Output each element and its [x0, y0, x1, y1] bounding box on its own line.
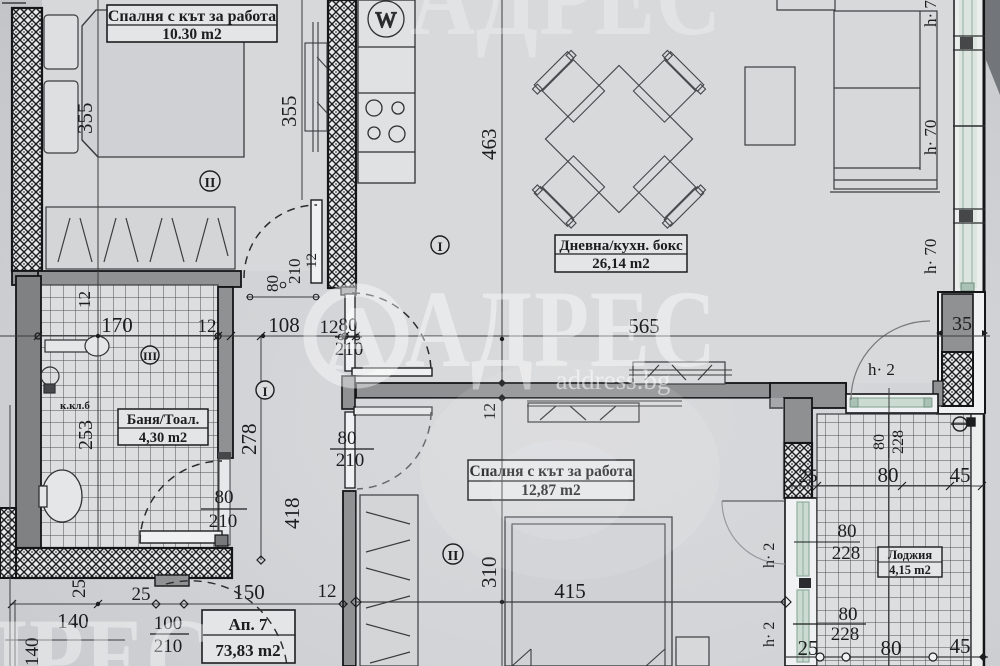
svg-text:h· 70: h· 70	[921, 120, 940, 155]
svg-text:45: 45	[950, 463, 971, 487]
svg-text:h· 2: h· 2	[761, 543, 778, 568]
svg-text:463: 463	[477, 129, 501, 161]
svg-text:АДРЕС: АДРЕС	[410, 0, 722, 58]
svg-text:25: 25	[69, 579, 90, 598]
svg-text:10.30 m2: 10.30 m2	[162, 26, 222, 43]
svg-text:12: 12	[318, 581, 337, 602]
svg-text:h· 70: h· 70	[921, 239, 940, 274]
svg-text:I: I	[262, 384, 267, 399]
svg-text:25: 25	[799, 466, 818, 487]
svg-text:АДРЕС: АДРЕС	[0, 597, 212, 666]
svg-text:А: А	[324, 287, 390, 389]
svg-text:h· 7: h· 7	[921, 0, 940, 27]
svg-text:80: 80	[338, 428, 357, 449]
svg-text:73,83 m2: 73,83 m2	[215, 641, 280, 660]
svg-text:45: 45	[950, 634, 971, 658]
svg-text:II: II	[448, 549, 459, 564]
svg-text:253: 253	[75, 420, 97, 450]
svg-text:415: 415	[554, 579, 586, 603]
svg-text:25: 25	[798, 636, 819, 660]
svg-text:80: 80	[871, 434, 888, 450]
svg-text:III: III	[143, 349, 157, 363]
svg-text:address.bg: address.bg	[556, 365, 671, 395]
svg-text:355: 355	[277, 96, 301, 128]
svg-text:80: 80	[263, 275, 282, 292]
svg-text:h· 2: h· 2	[761, 622, 778, 647]
svg-text:4,15 m2: 4,15 m2	[889, 563, 931, 577]
svg-text:80: 80	[878, 463, 899, 487]
svg-text:418: 418	[280, 498, 304, 530]
svg-text:W: W	[376, 7, 397, 32]
svg-text:228: 228	[890, 430, 907, 454]
svg-text:170: 170	[101, 313, 133, 337]
svg-text:II: II	[205, 176, 216, 191]
svg-text:80: 80	[839, 604, 858, 625]
svg-text:12: 12	[75, 291, 94, 308]
svg-text:I: I	[437, 239, 442, 254]
svg-text:80: 80	[838, 521, 857, 542]
svg-text:210: 210	[209, 511, 238, 532]
svg-text:210: 210	[336, 450, 365, 471]
svg-text:Дневна/кухн. бокс: Дневна/кухн. бокс	[559, 238, 683, 254]
svg-text:278: 278	[237, 424, 261, 456]
svg-text:355: 355	[73, 103, 97, 135]
svg-text:12: 12	[304, 253, 320, 268]
svg-text:Баня/Тоал.: Баня/Тоал.	[127, 412, 199, 428]
svg-text:80: 80	[215, 487, 234, 508]
svg-text:4,30 m2: 4,30 m2	[139, 430, 187, 446]
svg-text:h· 2: h· 2	[868, 360, 895, 379]
svg-text:108: 108	[268, 313, 300, 337]
svg-text:35: 35	[952, 313, 972, 335]
svg-text:80: 80	[881, 636, 902, 660]
svg-text:Лоджия: Лоджия	[888, 548, 932, 562]
svg-text:Спалня с кът за работа: Спалня с кът за работа	[108, 8, 276, 25]
svg-text:Ап. 7: Ап. 7	[228, 615, 268, 634]
svg-text:12: 12	[198, 316, 217, 337]
svg-text:210: 210	[285, 259, 304, 285]
svg-text:228: 228	[831, 624, 860, 645]
svg-text:228: 228	[832, 543, 861, 564]
svg-text:к.кл.б: к.кл.б	[60, 400, 90, 412]
